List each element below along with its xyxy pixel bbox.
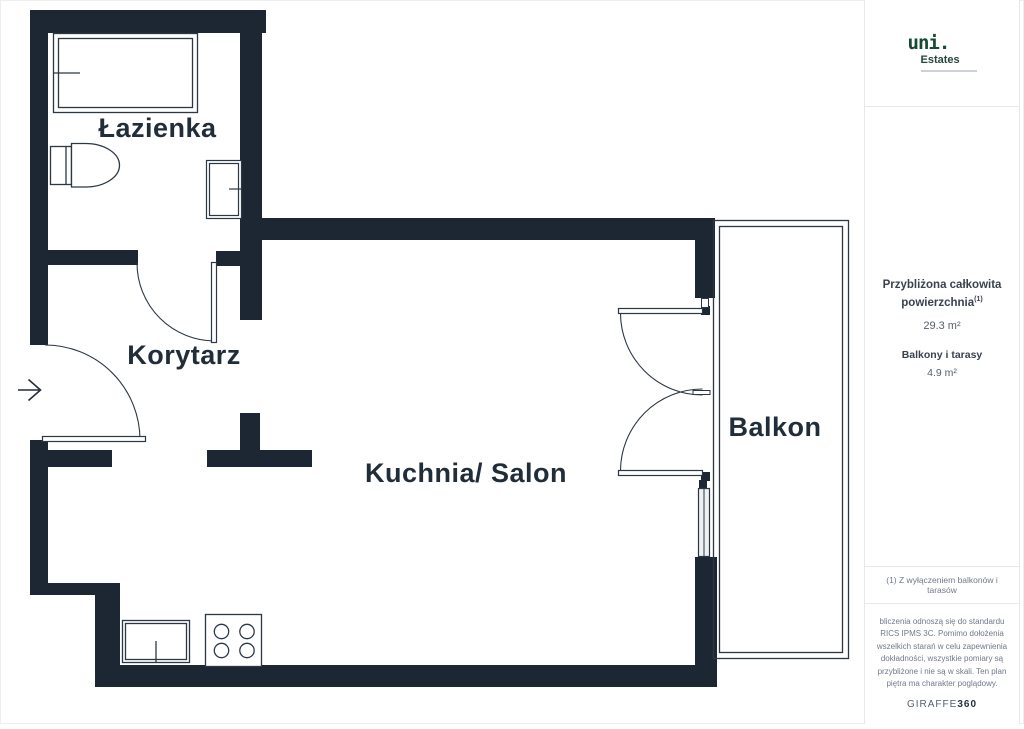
total-area-footnote-marker: (1) <box>974 296 983 303</box>
uni-estates-logo: uni. Estates <box>908 34 977 72</box>
room-label-kitchen-living: Kuchnia/ Salon <box>330 458 602 489</box>
disclaimer-text: bliczenia odnoszą się do standardu RICS … <box>876 616 1008 690</box>
room-label-corridor: Korytarz <box>94 340 274 371</box>
balcony-french-doors <box>619 309 711 476</box>
stove <box>206 615 262 667</box>
disclaimer-section: bliczenia odnoszą się do standardu RICS … <box>865 604 1019 724</box>
room-label-bathroom: Łazienka <box>70 113 245 144</box>
floor-plan: Łazienka Korytarz Kuchnia/ Salon Balkon <box>0 0 864 724</box>
giraffe360-brand-light: GIRAFFE <box>907 699 957 710</box>
toilet <box>51 144 120 188</box>
bathtub <box>54 34 198 113</box>
room-label-balcony: Balkon <box>700 412 850 443</box>
giraffe360-brand-bold: 360 <box>957 699 977 710</box>
entrance-arrow-icon <box>18 380 41 401</box>
logo-subbrand-text: Estates <box>921 55 977 66</box>
footnote-section: (1) Z wyłączeniem balkonów i tarasów <box>865 566 1019 604</box>
sidebar: uni. Estates Przybliżona całkowita powie… <box>864 0 1020 724</box>
logo-tagline <box>921 70 977 72</box>
kitchen-sink <box>123 621 190 663</box>
logo-section: uni. Estates <box>865 0 1019 107</box>
bathroom-sink <box>207 161 242 219</box>
footnote-text: (1) Z wyłączeniem balkonów i tarasów <box>873 575 1011 595</box>
balcony-area-value: 4.9 m² <box>875 367 1009 379</box>
total-area-value: 29.3 m² <box>875 320 1009 332</box>
total-area-title: Przybliżona całkowita powierzchnia(1) <box>875 277 1009 313</box>
balcony-area-title: Balkony i tarasy <box>875 349 1009 361</box>
giraffe360-brand: GIRAFFE360 <box>876 699 1008 710</box>
area-summary-section: Przybliżona całkowita powierzchnia(1) 29… <box>865 107 1019 566</box>
logo-brand-text: uni. <box>908 34 977 53</box>
bathroom-door <box>137 263 217 343</box>
total-area-title-text: Przybliżona całkowita powierzchnia <box>883 279 1002 309</box>
